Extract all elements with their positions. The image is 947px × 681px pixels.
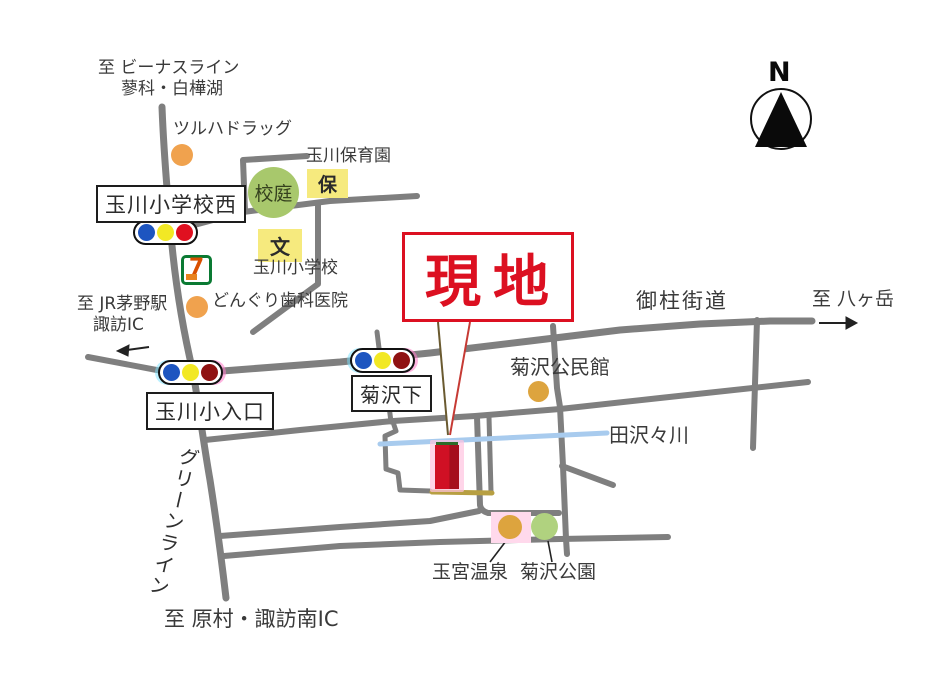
traffic-light-kikusawashita	[350, 348, 415, 373]
location-map: 至 ビーナスライン 蓼科・白樺湖 至 JR茅野駅 諏訪IC 至 八ヶ岳 至 原村…	[0, 0, 947, 681]
signal-blue-lamp	[163, 364, 180, 381]
compass-north-label: N	[768, 57, 791, 88]
destination-suwa-ic: 諏訪IC	[93, 316, 144, 336]
park-leader-line	[548, 541, 552, 562]
tsuruha-drug-dot	[171, 144, 193, 166]
kouminkan-dot	[528, 381, 549, 402]
destination-venus-line: 至 ビーナスライン	[98, 59, 239, 79]
destination-haramura: 至 原村・諏訪南IC	[164, 607, 339, 631]
road-tan-lane	[432, 492, 492, 493]
signal-yellow-lamp	[182, 364, 199, 381]
onsen-leader-line	[490, 541, 506, 562]
tsuruha-drug-label: ツルハドラッグ	[173, 120, 292, 140]
park-label: 菊沢公園	[520, 562, 596, 584]
signal-yellow-lamp	[374, 352, 391, 369]
road-branch-upper-left	[220, 511, 479, 536]
elementary-school-label: 玉川小学校	[253, 259, 338, 279]
road-site-vertical-east	[489, 417, 491, 492]
road-onbashira-kaido	[196, 321, 812, 373]
signal-blue-lamp	[355, 352, 372, 369]
onbashira-road-label: 御柱街道	[636, 289, 728, 313]
signal-blue-lamp	[138, 224, 155, 241]
signal-red-lamp	[176, 224, 193, 241]
signal-red-lamp	[201, 364, 218, 381]
onsen-label: 玉宮温泉	[432, 562, 508, 584]
road-site-staircase	[385, 422, 430, 491]
nursery-tag: 保	[307, 169, 348, 198]
arrow-right-icon	[819, 317, 857, 329]
road-to-jr	[88, 357, 162, 371]
river-line	[380, 433, 607, 444]
seven-eleven-icon: 7	[181, 255, 212, 285]
nursery-label: 玉川保育園	[306, 147, 391, 167]
river-label: 田沢々川	[609, 424, 689, 447]
signal-red-lamp	[393, 352, 410, 369]
signal-yellow-lamp	[157, 224, 174, 241]
site-callout-box: 現地	[402, 232, 574, 322]
schoolyard-circle: 校庭	[248, 167, 299, 218]
intersection-sign-kikusawashita: 菊沢下	[351, 375, 432, 412]
intersection-sign-school-west: 玉川小学校西	[96, 185, 246, 223]
dental-clinic-label: どんぐり歯科医院	[212, 292, 348, 312]
road-second-east-west	[205, 382, 808, 440]
destination-venus-line-2: 蓼科・白樺湖	[121, 80, 223, 100]
onsen-dot	[498, 515, 522, 539]
road-east-vertical	[753, 320, 757, 448]
traffic-light-entrance	[158, 360, 223, 385]
traffic-light-school-west	[133, 220, 198, 245]
dental-clinic-dot	[186, 296, 208, 318]
seven-eleven-band	[186, 274, 197, 280]
destination-yatsugatake: 至 八ヶ岳	[812, 289, 894, 311]
arrow-left-icon	[117, 345, 149, 356]
road-bottom	[224, 537, 668, 556]
road-c-branch	[562, 466, 613, 485]
site-marker	[435, 445, 459, 489]
destination-jr-chino: 至 JR茅野駅	[77, 295, 167, 315]
park-dot	[531, 513, 558, 540]
kouminkan-label: 菊沢公民館	[510, 356, 610, 379]
intersection-sign-entrance: 玉川小入口	[146, 392, 274, 430]
